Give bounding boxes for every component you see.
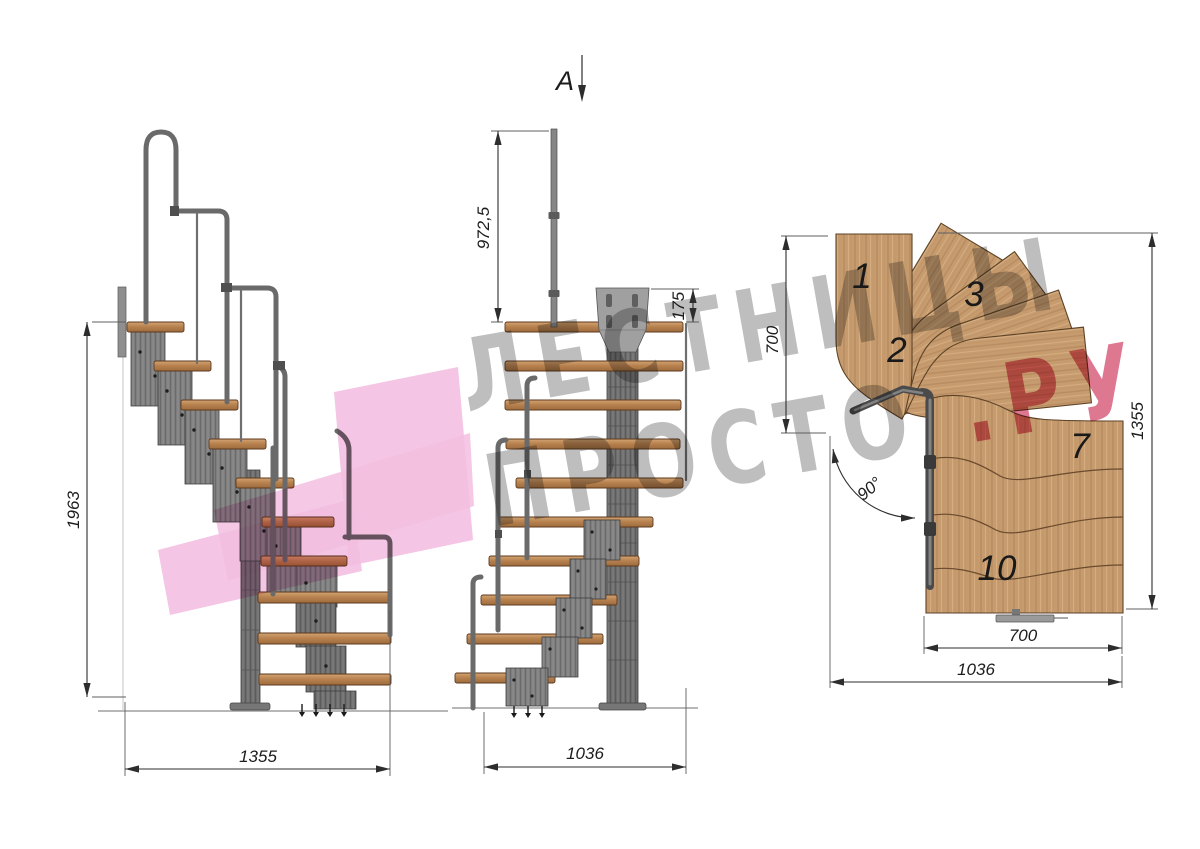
dim-side-height: 1963	[64, 322, 126, 697]
dim-label: 700	[1009, 626, 1038, 645]
dim-front-rail-height: 972,5	[474, 131, 549, 322]
dim-label: 1355	[1128, 402, 1147, 440]
drawing-page: ЛЕСТНИЦЫ ПРОСТО .РУ A 1963 1355	[0, 0, 1200, 849]
dim-label: 175	[669, 291, 688, 320]
section-arrow-icon	[578, 85, 586, 102]
dim-label: 1963	[64, 491, 83, 529]
dim-label: 1036	[957, 660, 995, 679]
tread-number-10: 10	[978, 549, 1017, 588]
dim-label: 1355	[239, 747, 277, 766]
tread-number-3: 3	[964, 275, 984, 314]
front-modules	[506, 520, 620, 706]
rail-clamp	[221, 283, 232, 292]
section-label: A	[554, 66, 574, 96]
top-rail-post	[549, 129, 560, 327]
tread-number-2: 2	[886, 331, 906, 370]
dim-label: 972,5	[474, 206, 493, 249]
staircase-technical-drawing: ЛЕСТНИЦЫ ПРОСТО .РУ A 1963 1355	[0, 0, 1200, 849]
dim-label: 700	[763, 325, 782, 354]
rail-clamp	[170, 206, 179, 216]
tread-number-7: 7	[1070, 427, 1091, 466]
tread-number-1: 1	[852, 257, 871, 296]
rail-clamp	[273, 361, 285, 370]
dim-label: 1036	[566, 744, 604, 763]
section-marker: A	[554, 55, 586, 102]
